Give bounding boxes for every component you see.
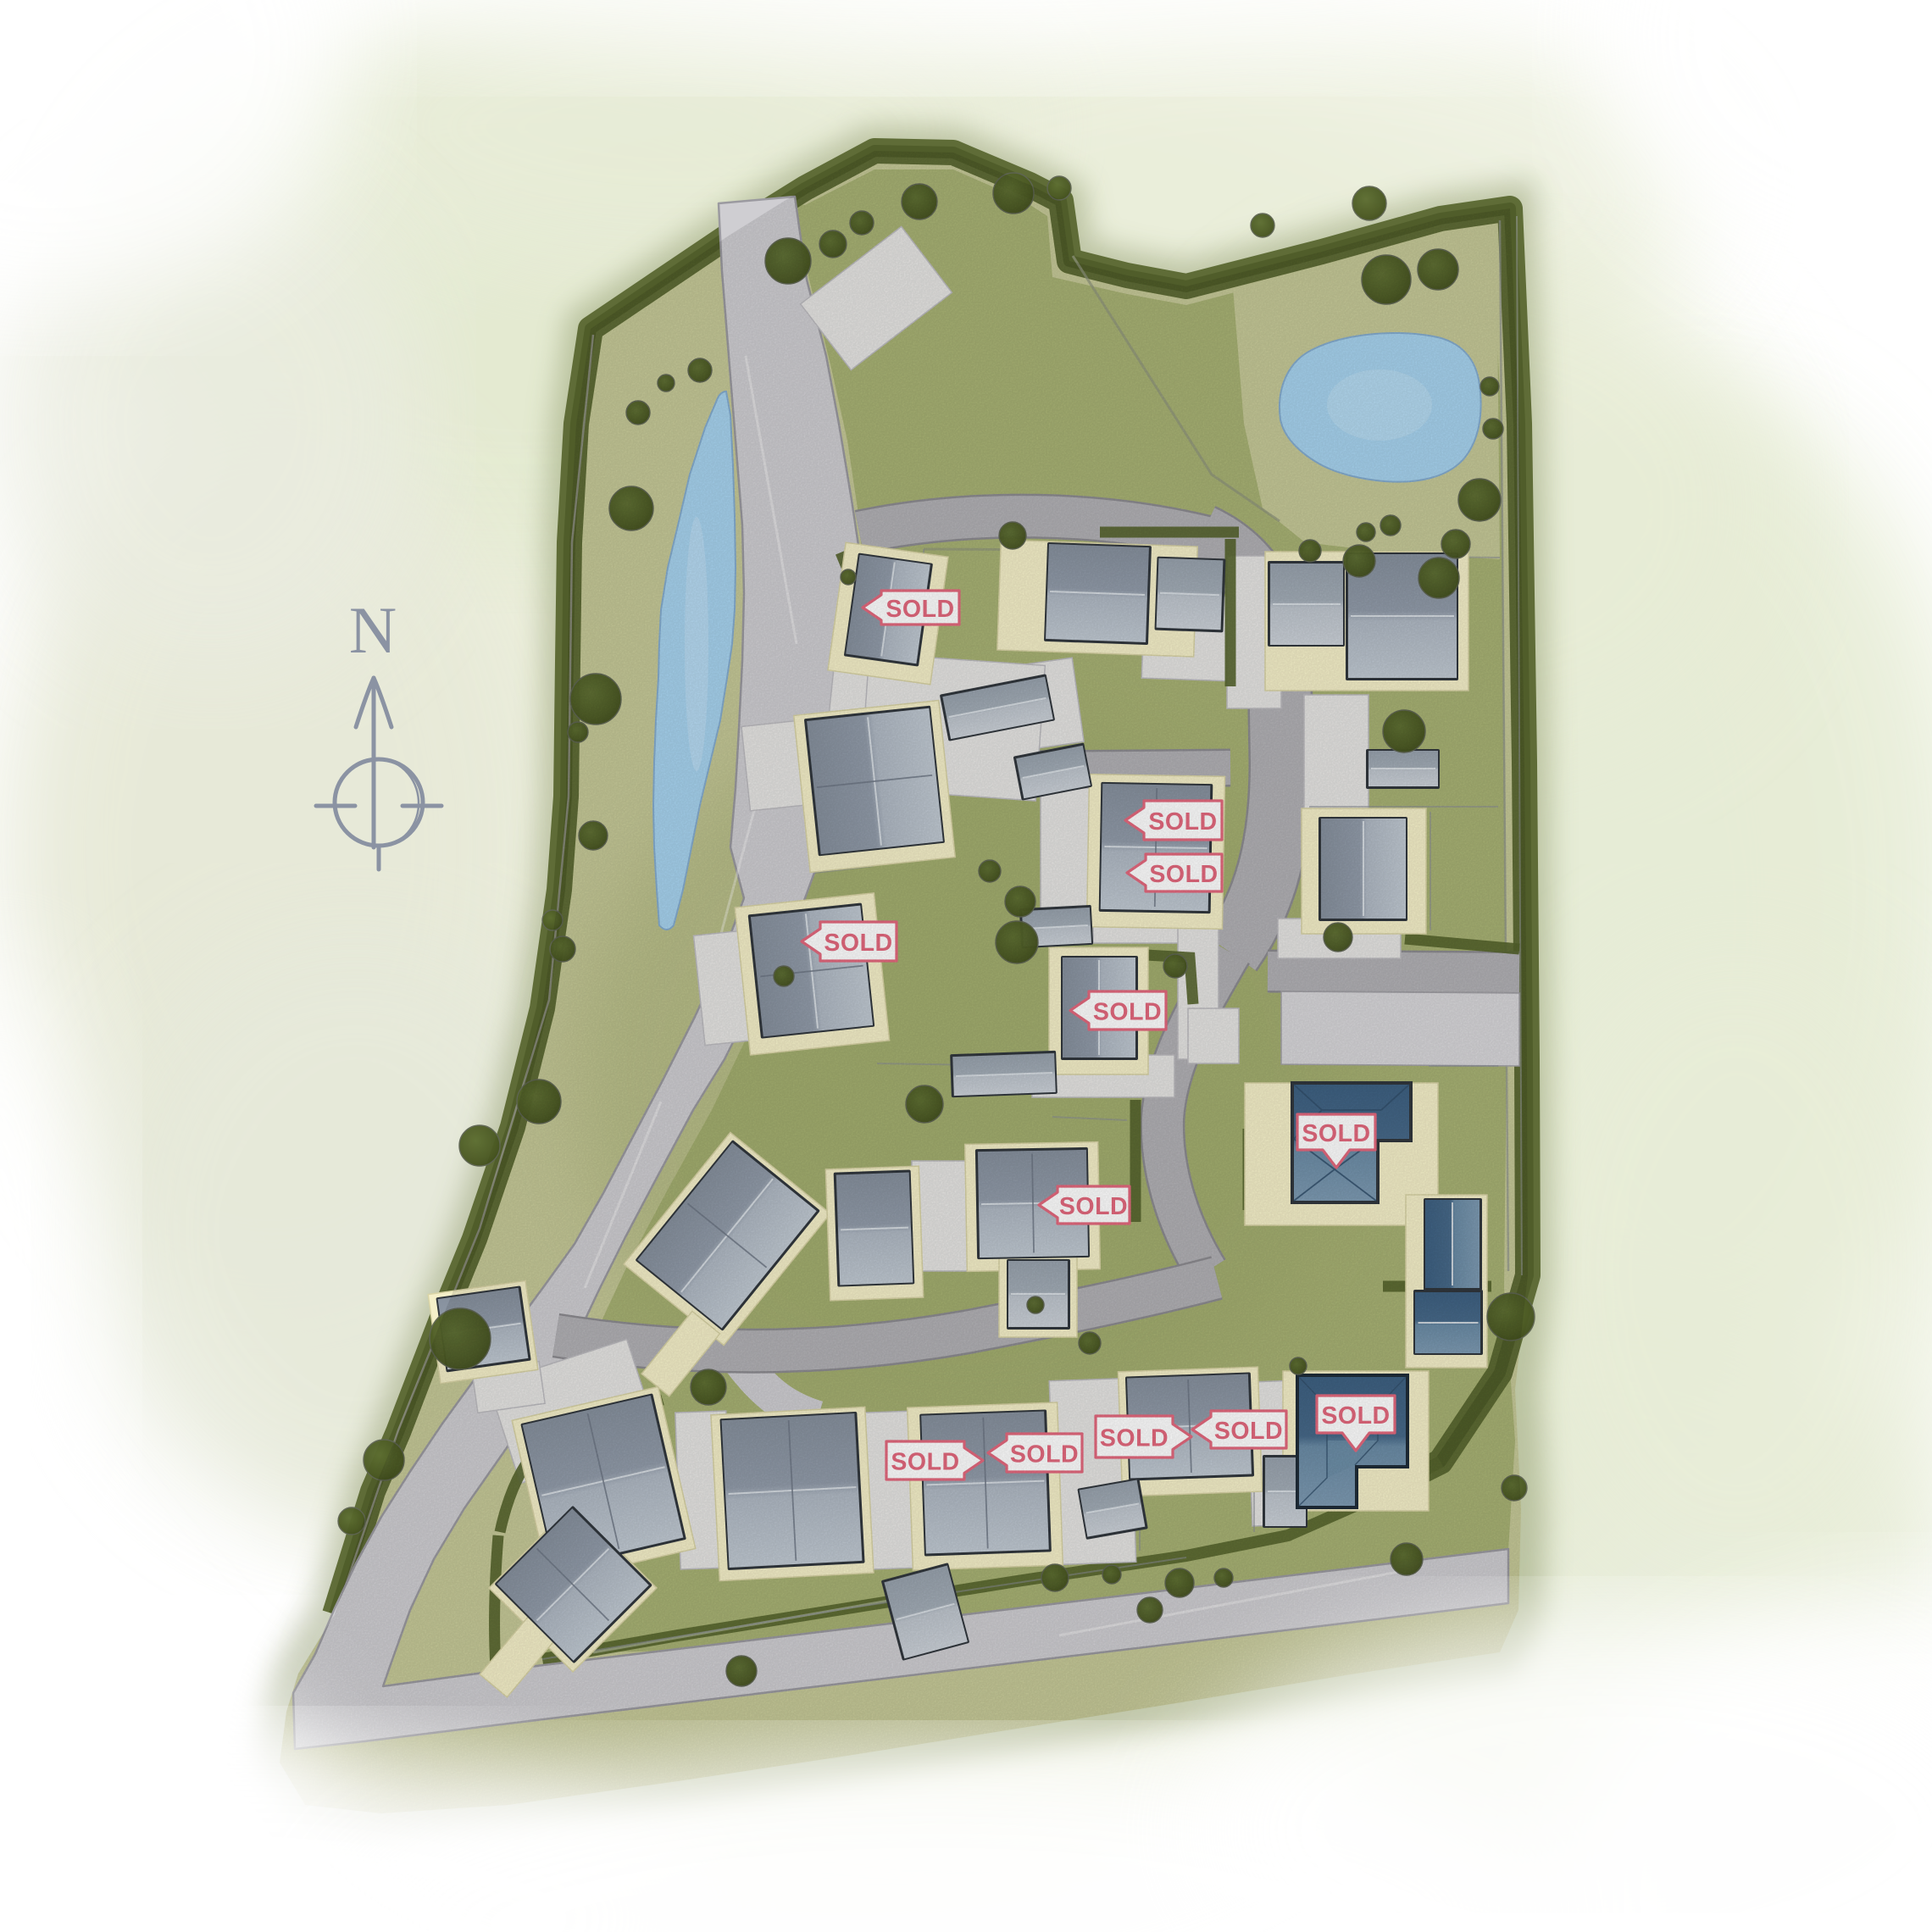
svg-text:N: N — [349, 593, 397, 667]
